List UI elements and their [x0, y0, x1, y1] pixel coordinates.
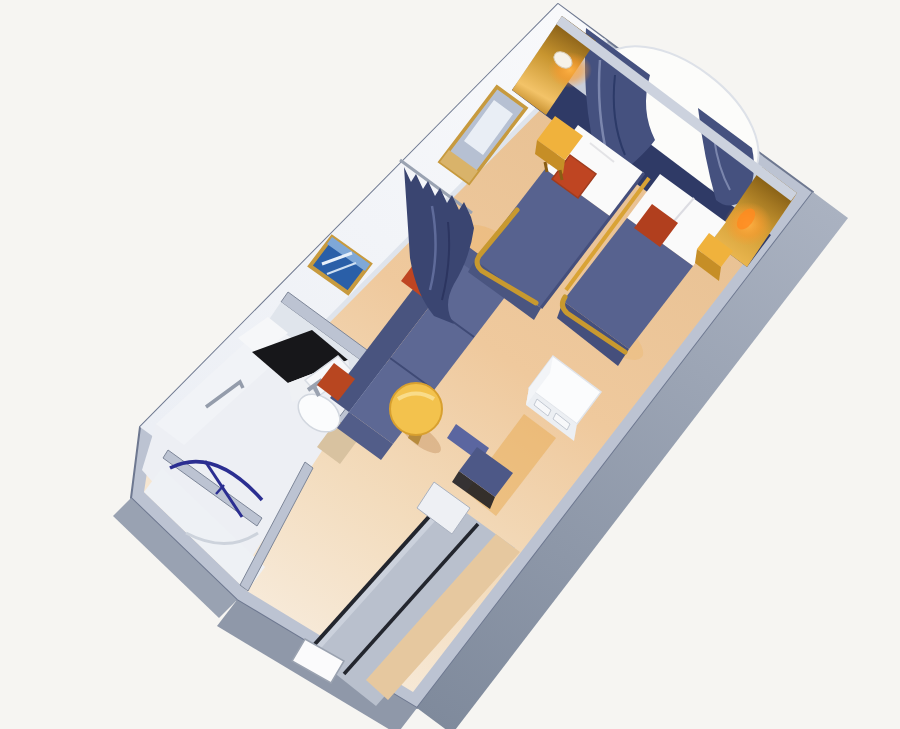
stateroom-scene — [0, 0, 900, 729]
table-top — [390, 383, 442, 435]
stateroom-cutaway-rendering — [0, 0, 900, 729]
